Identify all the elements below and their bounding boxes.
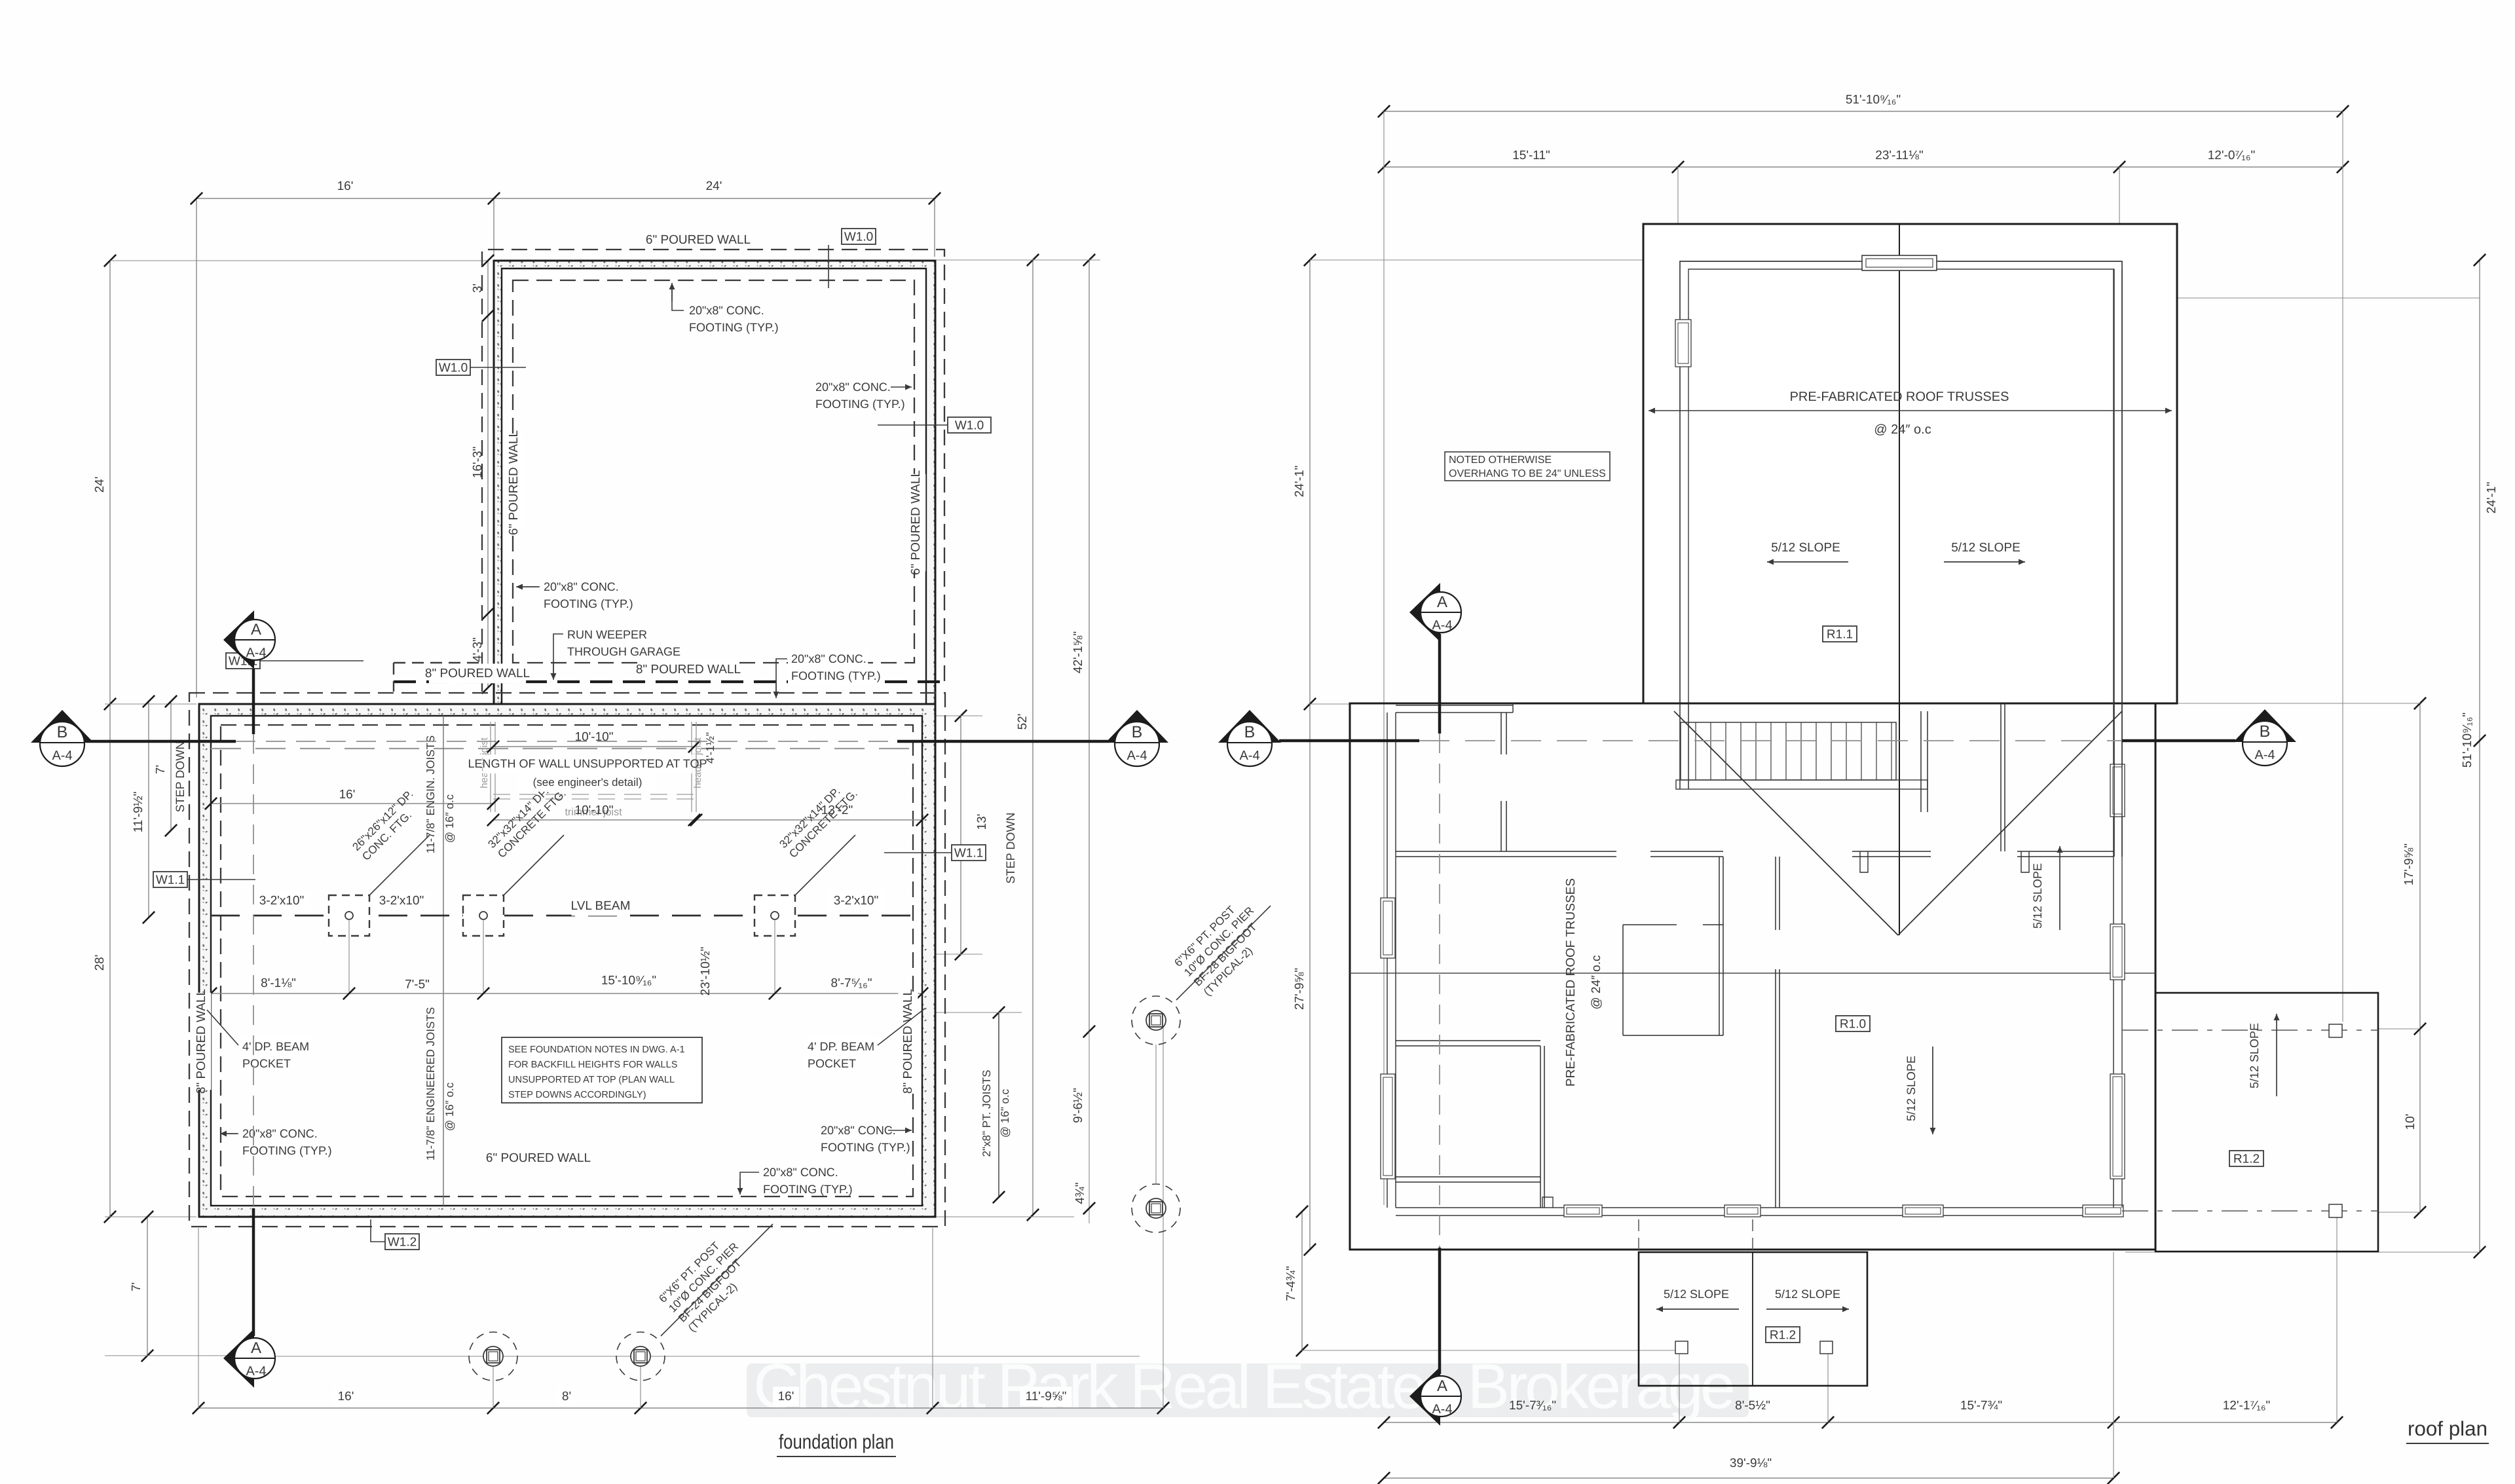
svg-text:@ 24″ o.c: @ 24″ o.c	[1590, 955, 1603, 1009]
svg-text:A-4: A-4	[2254, 748, 2275, 762]
svg-text:A: A	[251, 621, 261, 639]
svg-text:16': 16'	[339, 788, 356, 802]
svg-text:13': 13'	[975, 814, 989, 830]
svg-text:8'-5½": 8'-5½"	[1735, 1399, 1770, 1413]
svg-text:4' DP. BEAM: 4' DP. BEAM	[242, 1040, 309, 1053]
svg-text:6" POURED WALL: 6" POURED WALL	[507, 430, 521, 535]
svg-text:A-4: A-4	[246, 646, 266, 660]
svg-text:20"x8" CONC.: 20"x8" CONC.	[821, 1124, 896, 1137]
svg-text:@ 24″ o.c: @ 24″ o.c	[1874, 422, 1931, 437]
svg-text:20"x8" CONC.: 20"x8" CONC.	[544, 580, 619, 593]
svg-text:20"x8" CONC.: 20"x8" CONC.	[689, 304, 764, 317]
svg-text:OVERHANG TO BE 24" UNLESS: OVERHANG TO BE 24" UNLESS	[1449, 468, 1606, 479]
svg-text:FOOTING (TYP.): FOOTING (TYP.)	[763, 1183, 853, 1196]
svg-text:11-7/8" ENGIN. JOISTS: 11-7/8" ENGIN. JOISTS	[424, 735, 437, 854]
svg-text:B: B	[2260, 722, 2271, 741]
svg-text:27'-9⅝": 27'-9⅝"	[1293, 968, 1307, 1010]
svg-text:@ 16″ o.c: @ 16″ o.c	[443, 1082, 456, 1131]
svg-text:roof plan: roof plan	[2408, 1417, 2487, 1440]
svg-text:11'-9⅝": 11'-9⅝"	[1026, 1390, 1067, 1403]
svg-text:W1.2: W1.2	[388, 1236, 417, 1250]
svg-text:8'-1⅛": 8'-1⅛"	[261, 976, 296, 990]
svg-text:7'-4¾": 7'-4¾"	[1284, 1266, 1298, 1301]
svg-text:THROUGH GARAGE: THROUGH GARAGE	[567, 645, 680, 658]
svg-text:8" POURED WALL: 8" POURED WALL	[901, 989, 915, 1094]
svg-text:SEE FOUNDATION NOTES IN DWG. A: SEE FOUNDATION NOTES IN DWG. A-1	[508, 1045, 685, 1055]
svg-text:A-4: A-4	[1239, 749, 1259, 763]
svg-text:15'-7¾": 15'-7¾"	[1960, 1399, 2002, 1413]
svg-text:15'-10⁹⁄₁₆": 15'-10⁹⁄₁₆"	[601, 974, 656, 988]
svg-text:A-4: A-4	[1432, 1402, 1452, 1417]
svg-text:A: A	[1437, 593, 1447, 611]
svg-text:A-4: A-4	[246, 1364, 266, 1379]
svg-text:FOR BACKFILL HEIGHTS FOR WALLS: FOR BACKFILL HEIGHTS FOR WALLS	[508, 1060, 677, 1070]
svg-text:8" POURED WALL: 8" POURED WALL	[636, 663, 741, 677]
svg-text:B: B	[57, 723, 68, 741]
svg-text:23'-10½": 23'-10½"	[699, 947, 713, 996]
svg-text:39'-9⅛": 39'-9⅛"	[1730, 1456, 1772, 1470]
svg-text:24'-1": 24'-1"	[2485, 482, 2499, 513]
svg-text:FOOTING (TYP.): FOOTING (TYP.)	[242, 1144, 332, 1157]
svg-text:5/12 SLOPE: 5/12 SLOPE	[2031, 863, 2044, 929]
svg-text:R1.1: R1.1	[1827, 628, 1853, 642]
svg-text:4¾": 4¾"	[1073, 1182, 1087, 1204]
svg-text:6" POURED WALL: 6" POURED WALL	[486, 1151, 591, 1165]
svg-text:FOOTING (TYP.): FOOTING (TYP.)	[689, 321, 779, 334]
svg-text:STEP DOWNS ACCORDINGLY): STEP DOWNS ACCORDINGLY)	[508, 1090, 646, 1100]
svg-text:7'-5": 7'-5"	[405, 978, 430, 992]
svg-text:W1.1: W1.1	[156, 874, 185, 887]
svg-text:11'-9½": 11'-9½"	[132, 792, 145, 833]
svg-text:9'-6½": 9'-6½"	[1071, 1088, 1085, 1123]
svg-text:RUN WEEPER: RUN WEEPER	[567, 628, 647, 641]
svg-text:24'-1": 24'-1"	[1293, 466, 1307, 497]
svg-text:5/12 SLOPE: 5/12 SLOPE	[1664, 1288, 1729, 1301]
svg-text:3-2'x10": 3-2'x10"	[834, 894, 878, 908]
svg-text:10': 10'	[2404, 1114, 2417, 1130]
svg-text:3-2'x10": 3-2'x10"	[259, 894, 304, 908]
svg-text:20"x8" CONC.: 20"x8" CONC.	[815, 380, 891, 394]
svg-text:20"x8" CONC.: 20"x8" CONC.	[791, 652, 866, 665]
svg-text:8" POURED WALL: 8" POURED WALL	[425, 667, 530, 680]
svg-text:R1.2: R1.2	[1770, 1329, 1796, 1343]
svg-text:51'-10⁹⁄₁₆": 51'-10⁹⁄₁₆"	[1846, 93, 1901, 107]
svg-text:FOOTING (TYP.): FOOTING (TYP.)	[821, 1141, 910, 1154]
svg-text:A-4: A-4	[1432, 618, 1452, 633]
svg-text:STEP DOWN: STEP DOWN	[174, 741, 187, 813]
svg-text:6" POURED WALL: 6" POURED WALL	[646, 233, 751, 247]
svg-text:R1.0: R1.0	[1840, 1018, 1866, 1031]
svg-text:11-7/8" ENGINEERED JOISTS: 11-7/8" ENGINEERED JOISTS	[424, 1007, 437, 1160]
svg-text:23'-11⅛": 23'-11⅛"	[1875, 149, 1923, 162]
svg-text:5/12 SLOPE: 5/12 SLOPE	[1775, 1288, 1840, 1301]
svg-text:A: A	[1437, 1377, 1447, 1395]
svg-text:16': 16'	[338, 1390, 354, 1403]
svg-text:FOOTING (TYP.): FOOTING (TYP.)	[544, 597, 633, 610]
svg-text:FOOTING (TYP.): FOOTING (TYP.)	[791, 669, 881, 682]
svg-text:16': 16'	[337, 179, 354, 193]
svg-text:A-4: A-4	[52, 749, 72, 763]
svg-text:B: B	[1132, 723, 1143, 741]
svg-text:42'-1⅝": 42'-1⅝"	[1071, 631, 1085, 673]
svg-text:5/12 SLOPE: 5/12 SLOPE	[2248, 1023, 2261, 1088]
svg-text:5/12 SLOPE: 5/12 SLOPE	[1905, 1056, 1918, 1121]
svg-text:15'-7³⁄₁₆": 15'-7³⁄₁₆"	[1509, 1399, 1556, 1413]
svg-text:12'-0⁷⁄₁₆": 12'-0⁷⁄₁₆"	[2208, 149, 2256, 162]
svg-text:6" POURED WALL: 6" POURED WALL	[909, 470, 923, 575]
svg-text:5/12 SLOPE: 5/12 SLOPE	[1951, 541, 2021, 555]
svg-text:20"x8" CONC.: 20"x8" CONC.	[763, 1166, 838, 1179]
svg-text:W1.1: W1.1	[954, 847, 983, 861]
svg-text:A: A	[251, 1339, 261, 1357]
svg-text:10'-10": 10'-10"	[575, 804, 614, 817]
svg-text:2"x8" PT. JOISTS: 2"x8" PT. JOISTS	[980, 1070, 993, 1157]
svg-text:FOOTING (TYP.): FOOTING (TYP.)	[815, 398, 905, 411]
svg-text:16': 16'	[778, 1390, 794, 1403]
svg-text:B: B	[1244, 723, 1256, 741]
svg-text:W1.0: W1.0	[439, 362, 468, 375]
svg-text:52': 52'	[1016, 714, 1030, 730]
svg-text:3-2'x10": 3-2'x10"	[379, 894, 424, 908]
svg-text:51'-10⁹⁄₁₆": 51'-10⁹⁄₁₆"	[2461, 713, 2474, 768]
svg-text:8': 8'	[562, 1390, 571, 1403]
svg-text:(see engineer's detail): (see engineer's detail)	[533, 776, 643, 788]
svg-text:POCKET: POCKET	[808, 1057, 856, 1070]
svg-text:7': 7'	[154, 765, 168, 774]
svg-text:UNSUPPORTED AT TOP (PLAN WALL: UNSUPPORTED AT TOP (PLAN WALL	[508, 1075, 675, 1085]
svg-text:LVL BEAM: LVL BEAM	[571, 899, 631, 913]
svg-text:8'-7⁵⁄₁₆": 8'-7⁵⁄₁₆"	[831, 976, 872, 990]
svg-text:W1.0: W1.0	[955, 419, 984, 433]
svg-text:A-4: A-4	[1127, 749, 1147, 763]
svg-text:17'-9⅝": 17'-9⅝"	[2402, 844, 2416, 885]
svg-text:12'-1⁷⁄₁₆": 12'-1⁷⁄₁₆"	[2223, 1399, 2271, 1413]
svg-text:@ 16″ o.c: @ 16″ o.c	[443, 794, 456, 843]
svg-text:LENGTH OF WALL UNSUPPORTED AT: LENGTH OF WALL UNSUPPORTED AT TOP	[468, 757, 707, 770]
svg-text:Chestnut Park Real Estate , Br: Chestnut Park Real Estate , Brokerage	[753, 1350, 1736, 1422]
svg-text:STEP DOWN: STEP DOWN	[1004, 813, 1017, 884]
svg-text:POCKET: POCKET	[242, 1057, 291, 1070]
svg-text:5/12 SLOPE: 5/12 SLOPE	[1771, 541, 1840, 555]
svg-text:24': 24'	[93, 477, 107, 493]
svg-text:@ 16" o.c: @ 16" o.c	[999, 1088, 1011, 1138]
svg-text:foundation plan: foundation plan	[779, 1430, 894, 1453]
svg-text:15'-11": 15'-11"	[1512, 149, 1550, 162]
svg-text:7': 7'	[130, 1282, 143, 1291]
svg-text:W1.0: W1.0	[844, 231, 873, 244]
svg-text:PRE-FABRICATED ROOF TRUSSES: PRE-FABRICATED ROOF TRUSSES	[1564, 878, 1578, 1086]
svg-text:NOTED OTHERWISE: NOTED OTHERWISE	[1449, 454, 1552, 466]
svg-text:PRE-FABRICATED ROOF TRUSSES: PRE-FABRICATED ROOF TRUSSES	[1790, 390, 2009, 404]
svg-text:28': 28'	[93, 955, 107, 971]
svg-text:4' DP. BEAM: 4' DP. BEAM	[808, 1040, 874, 1053]
svg-text:8" POURED WALL: 8" POURED WALL	[195, 989, 208, 1094]
svg-text:24': 24'	[706, 179, 722, 193]
svg-text:R1.2: R1.2	[2233, 1153, 2260, 1166]
